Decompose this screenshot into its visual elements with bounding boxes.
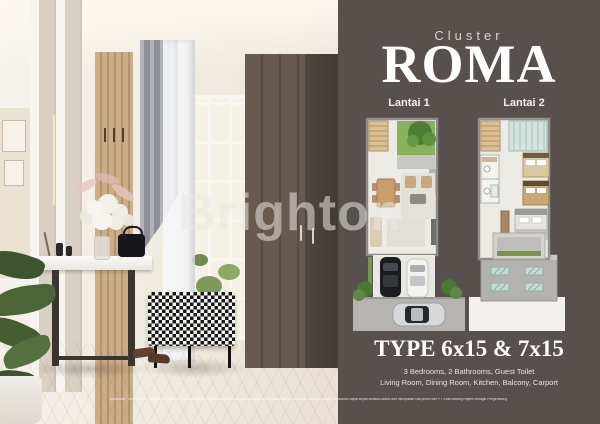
brighton-watermark: Brighton (178, 183, 403, 243)
room-details-line1: 3 Bedrooms, 2 Bathrooms, Guest Toilet (338, 366, 600, 377)
flower-vase (94, 236, 110, 260)
picture-frame (4, 160, 24, 186)
coat-hook (113, 128, 115, 142)
ground-base (469, 297, 565, 331)
shoe (148, 353, 171, 364)
floor-label-lantai-1: Lantai 1 (353, 97, 465, 109)
stairs-icon (369, 121, 388, 151)
perfume-bottle (56, 243, 63, 256)
property-flyer: Brighton Cluster ROMA Lantai 1 Lantai 2 (0, 0, 600, 424)
outdoor-plant (218, 264, 240, 280)
console-table-bar (52, 356, 135, 360)
console-table (30, 256, 152, 270)
car-black-icon (380, 257, 401, 297)
floor-label-lantai-2: Lantai 2 (469, 97, 579, 109)
flower-bouquet (86, 200, 102, 216)
perfume-bottle (66, 246, 72, 256)
cluster-name: ROMA (338, 36, 600, 93)
bed-2 (523, 181, 549, 205)
bench-leg (188, 346, 191, 368)
led-strip (53, 115, 55, 205)
balcony (493, 233, 545, 259)
plant-pot (0, 376, 42, 424)
disclaimer-text: Disclaimer : Materi-materi yang tertera … (110, 398, 508, 401)
garden (397, 121, 436, 155)
console-table-leg (52, 270, 59, 366)
floorplan-lantai-2 (469, 117, 579, 331)
car-road-icon (393, 303, 445, 326)
coat-hook (122, 128, 124, 142)
lounge-set (401, 173, 435, 219)
houndstooth-bench (148, 292, 235, 346)
bench-leg (228, 346, 231, 368)
coat-hook (104, 128, 106, 142)
type-title: TYPE 6x15 & 7x15 (338, 336, 600, 362)
room-details: 3 Bedrooms, 2 Bathrooms, Guest Toilet Li… (338, 366, 600, 389)
bathrooms (481, 155, 499, 203)
room-details-line2: Living Room, Dining Room, Kitchen, Balco… (338, 377, 600, 388)
stairs-icon (481, 121, 500, 151)
picture-frame (2, 120, 26, 152)
car-white-icon (407, 259, 428, 297)
kitchen-area (397, 155, 435, 169)
skylight-glass (509, 121, 547, 151)
handbag (118, 234, 145, 257)
carport-roof (481, 255, 557, 301)
bed-1 (523, 153, 549, 177)
